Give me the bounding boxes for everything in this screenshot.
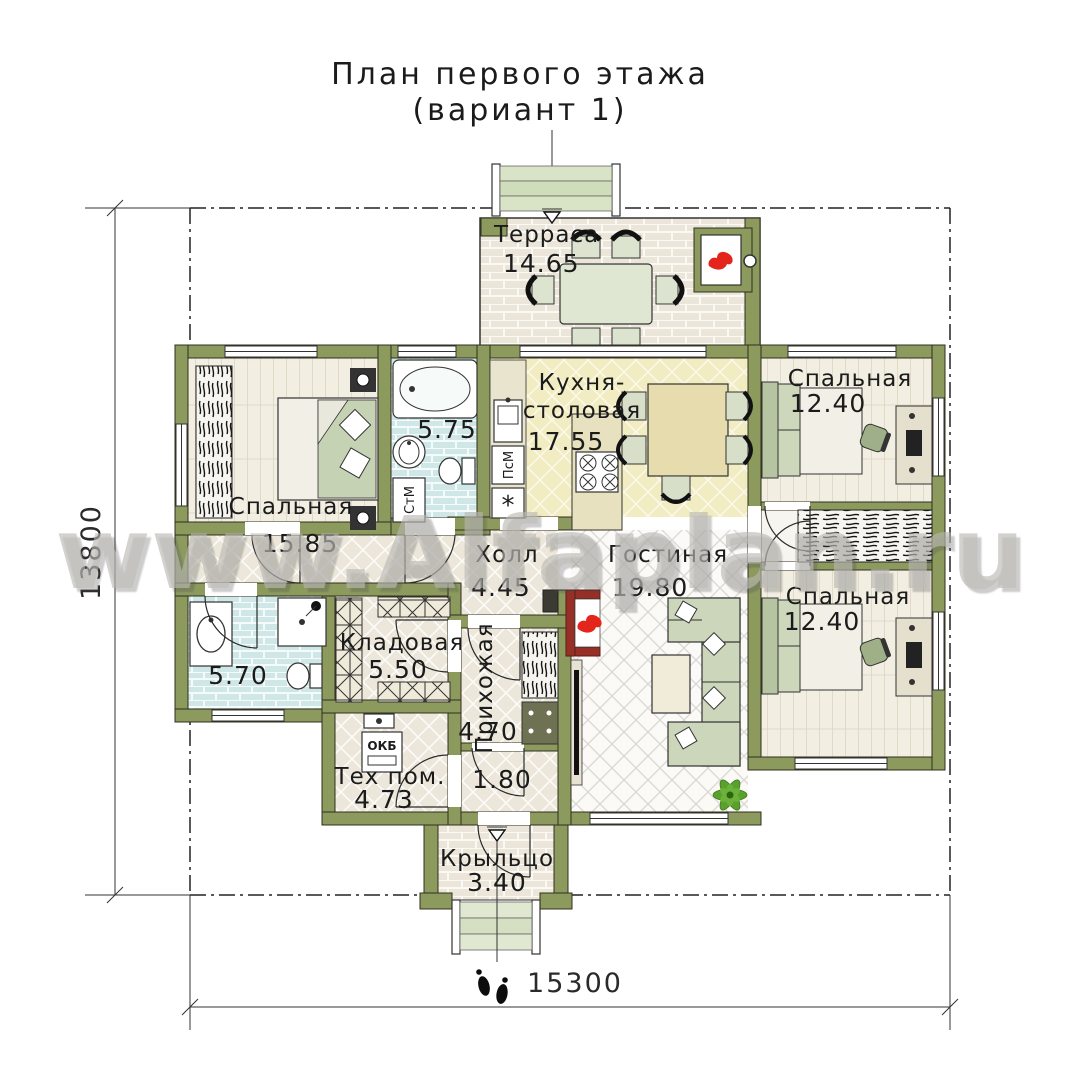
coffee-table-icon: [652, 655, 690, 713]
window: [398, 346, 456, 357]
tech-room-area-label: 4.73: [354, 785, 414, 814]
window: [176, 424, 187, 506]
window: [590, 813, 728, 824]
vestibule-area-label: 1.80: [472, 765, 532, 794]
watermark: www.Alfaplan.ru: [55, 495, 1025, 612]
kitchen-name-line2: столовая: [523, 398, 641, 424]
porch-area-label: 3.40: [467, 868, 527, 897]
dishwasher-icon: ПсМ: [492, 446, 524, 484]
room-terrace: Терраса 14.65: [480, 209, 760, 354]
floor-plan-svg: 13800 15300 План первого этажа (вариант …: [0, 0, 1080, 1080]
entry-hall-furniture: [522, 632, 558, 744]
title-line-2: (вариант 1): [412, 93, 627, 128]
window: [225, 346, 317, 357]
bedroom-top-right-area-label: 12.40: [790, 389, 867, 418]
barbecue-icon: [694, 228, 756, 292]
toilet-icon: [439, 458, 475, 484]
window: [933, 398, 944, 476]
kitchen-area-label: 17.55: [528, 427, 605, 456]
storage-name-label: Кладовая: [340, 630, 465, 656]
kitchen-sink-icon: [494, 398, 522, 443]
shoe-cabinet-icon: [522, 702, 558, 744]
window: [212, 710, 284, 721]
bed-icon: [278, 398, 378, 500]
footprints-icon: [476, 969, 509, 1005]
storage-area-label: 5.50: [368, 655, 428, 684]
terrace-steps: [492, 164, 620, 216]
tv-icon: [571, 660, 582, 785]
bathroom-top-area-label: 5.75: [417, 415, 477, 444]
dimension-width: 15300: [527, 968, 623, 999]
floor-plan-page: 13800 15300 План первого этажа (вариант …: [0, 0, 1080, 1080]
bathtub-icon: [393, 360, 477, 418]
window: [788, 346, 896, 357]
porch-steps: [452, 900, 540, 954]
bathroom-bottom-area-label: 5.70: [208, 661, 268, 690]
desk-icon: [896, 406, 932, 484]
terrace-name-label: Терраса: [493, 222, 599, 248]
entry-hall-area-label: 4.70: [458, 717, 518, 746]
window: [795, 758, 887, 769]
kitchen-name-line1: Кухня-: [539, 370, 626, 396]
desk-icon: [896, 618, 932, 696]
title-line-1: План первого этажа: [331, 57, 709, 92]
toilet-icon: [287, 663, 322, 689]
dishwasher-label: ПсМ: [502, 451, 517, 479]
window: [933, 612, 944, 690]
wardrobe-icon: [522, 632, 558, 698]
terrace-area-label: 14.65: [503, 249, 580, 278]
boiler-label: ОКБ: [367, 739, 396, 753]
window: [520, 346, 706, 357]
